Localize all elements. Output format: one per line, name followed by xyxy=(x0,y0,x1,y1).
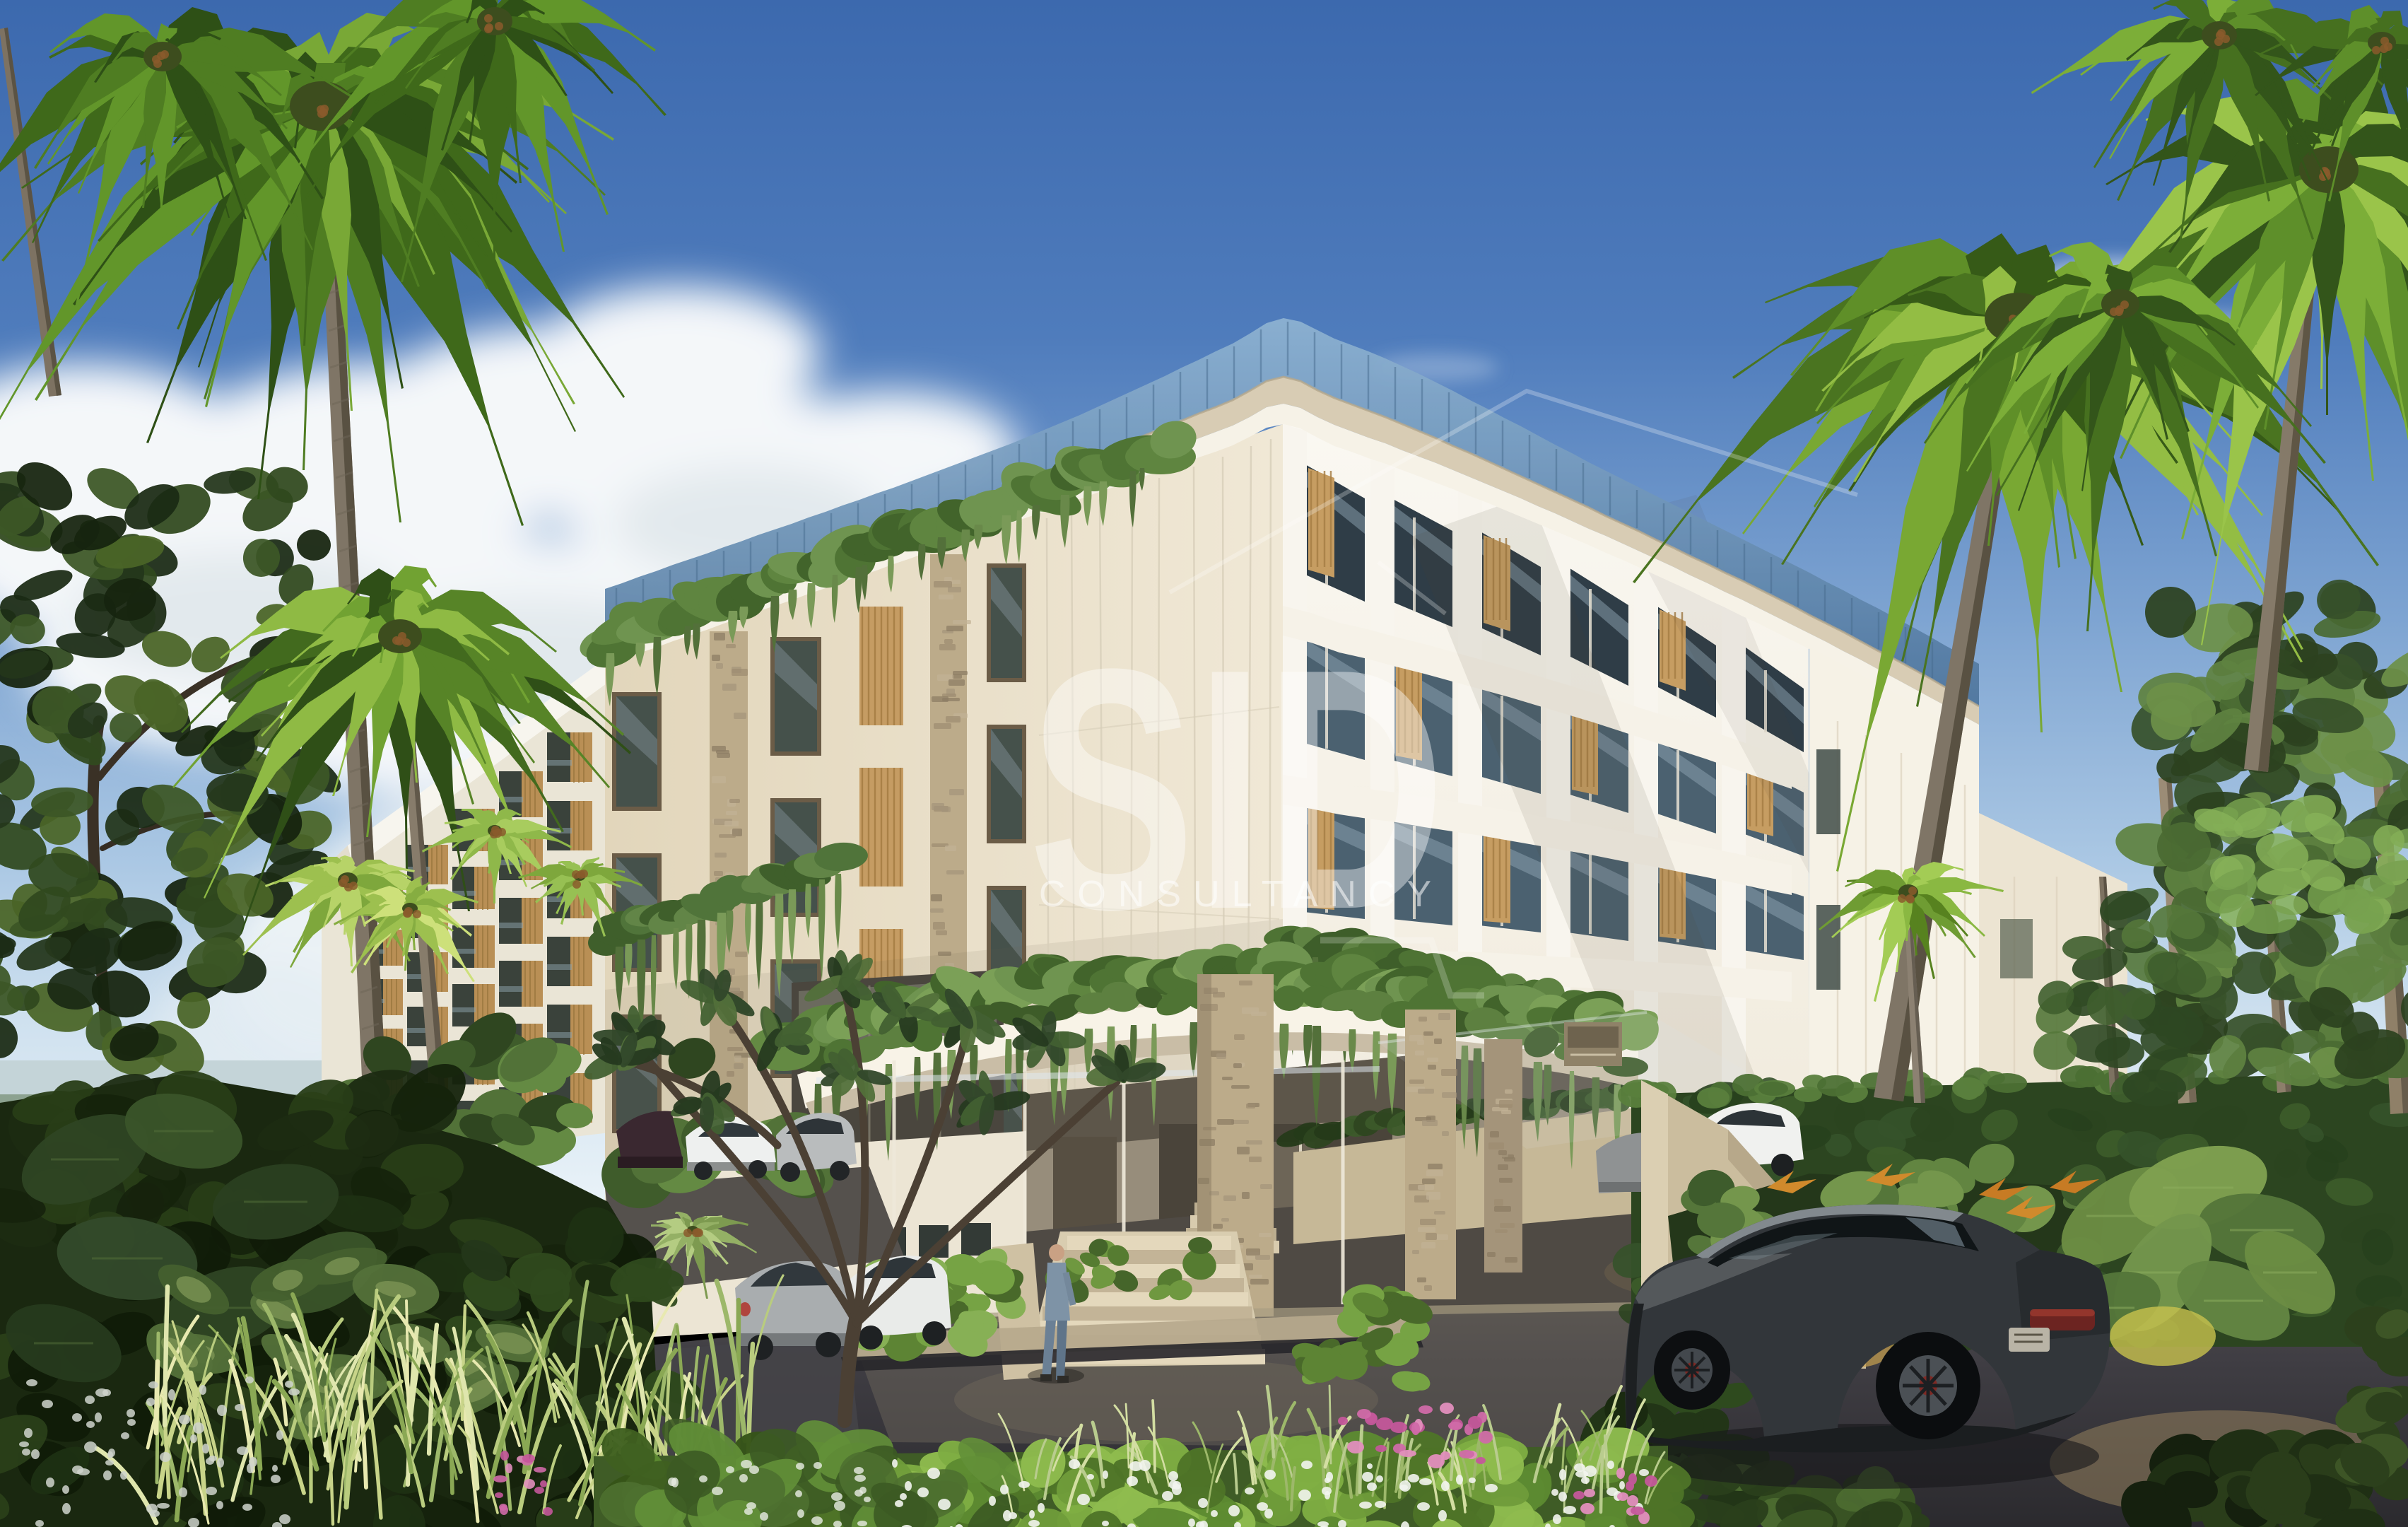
svg-text:CONSULTANCY: CONSULTANCY xyxy=(1039,874,1443,915)
svg-text:SID: SID xyxy=(1028,597,1445,980)
